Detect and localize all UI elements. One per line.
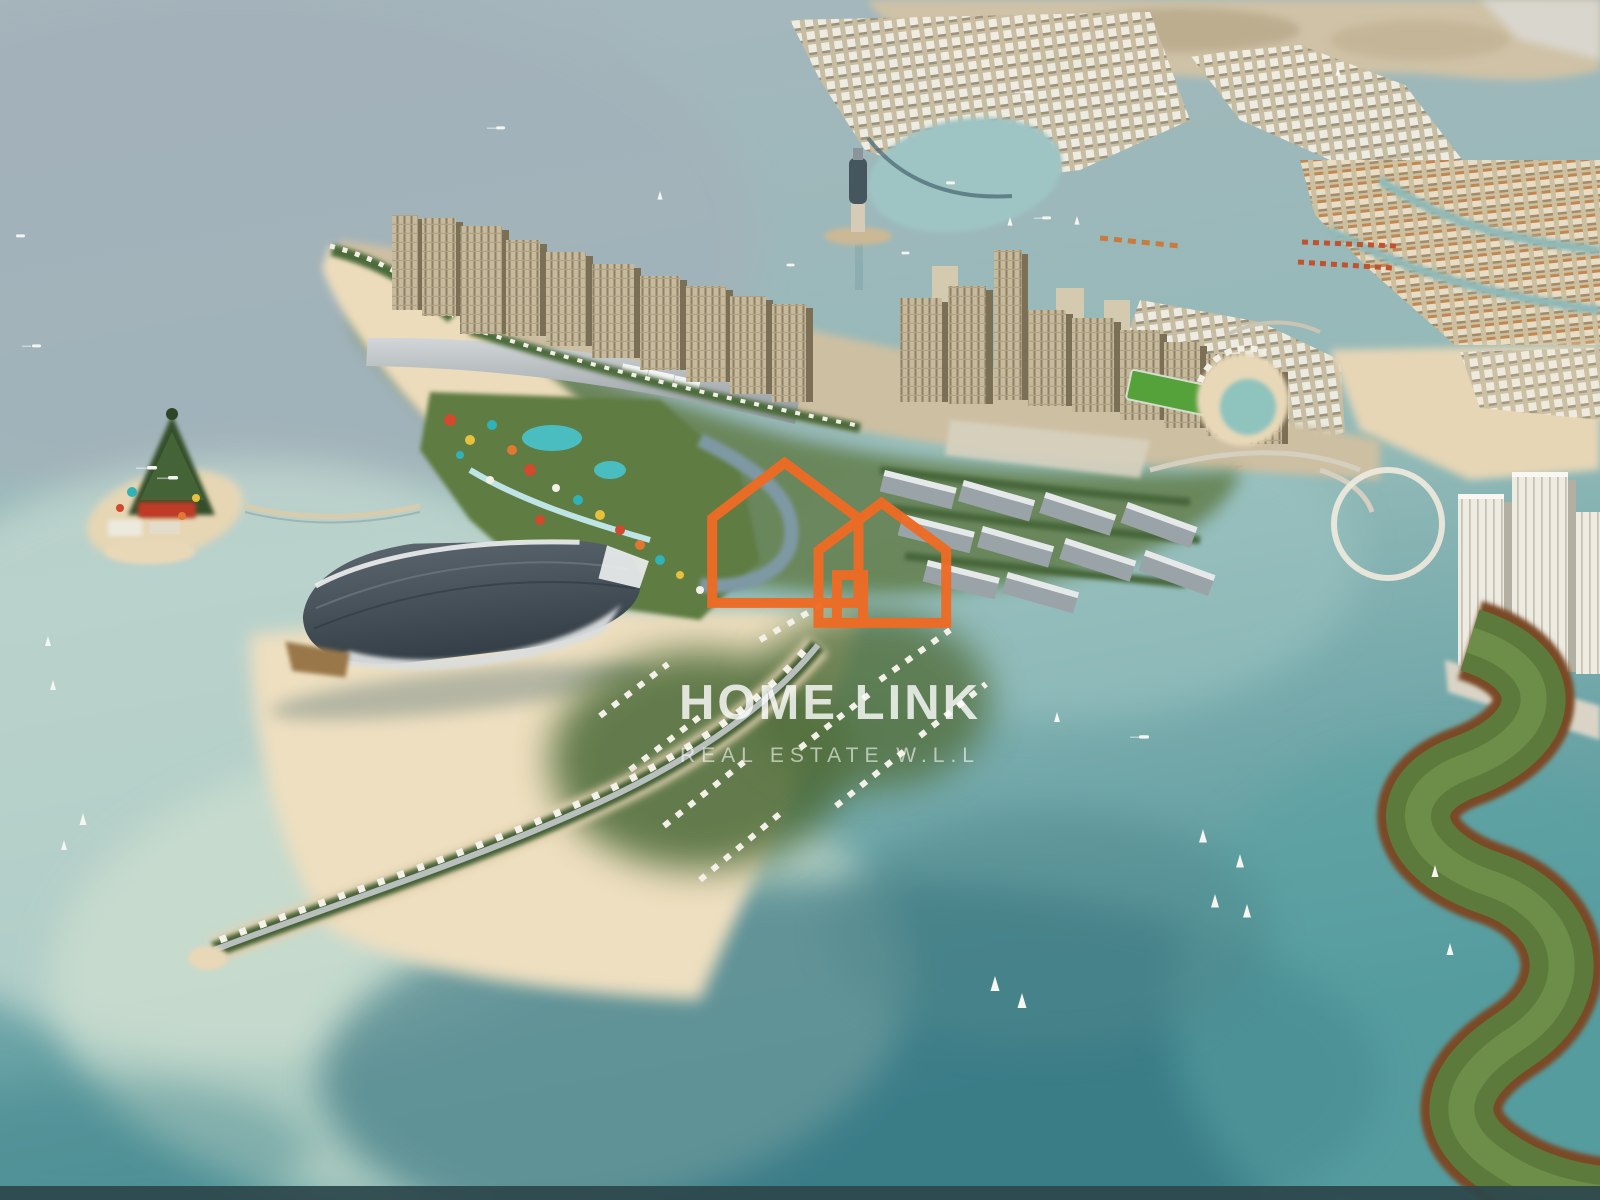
main-pool xyxy=(522,425,582,451)
aerial-photo: HOME LINK REAL ESTATE W.L.L xyxy=(0,0,1600,1200)
red-pavilion xyxy=(138,502,196,518)
peninsula-tip xyxy=(188,946,228,970)
scene-canvas xyxy=(0,0,1600,1200)
bottom-bar xyxy=(0,1186,1600,1200)
